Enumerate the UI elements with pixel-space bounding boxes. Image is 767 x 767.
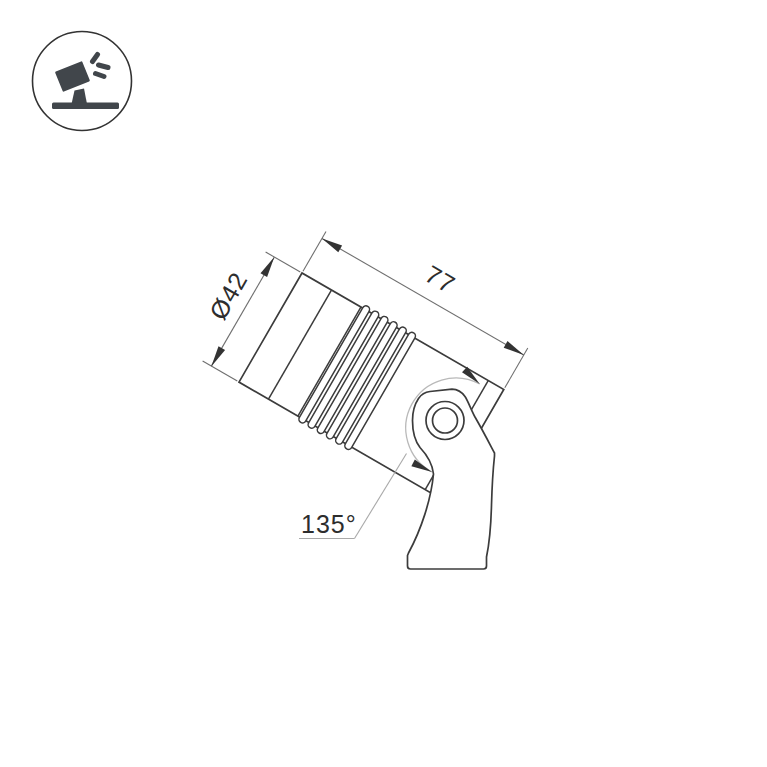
badge bbox=[33, 32, 132, 131]
extension-line bbox=[303, 231, 326, 271]
page: Ø42 77 135° bbox=[0, 0, 767, 767]
tilt-range-label: 135° bbox=[301, 510, 357, 538]
extension-line bbox=[203, 361, 238, 381]
diameter-label: Ø42 bbox=[204, 267, 253, 325]
dimension-arrow bbox=[261, 257, 275, 277]
technical-drawing: Ø42 77 135° bbox=[0, 0, 767, 767]
dimension-arrow bbox=[211, 346, 225, 366]
spotlight-base bbox=[52, 103, 119, 110]
leader-line bbox=[355, 454, 407, 539]
extension-line bbox=[505, 348, 528, 388]
dimension-arrow bbox=[322, 238, 342, 252]
dimension-arrow bbox=[504, 341, 524, 355]
length-label: 77 bbox=[421, 260, 461, 299]
pivot-knob bbox=[426, 402, 464, 440]
